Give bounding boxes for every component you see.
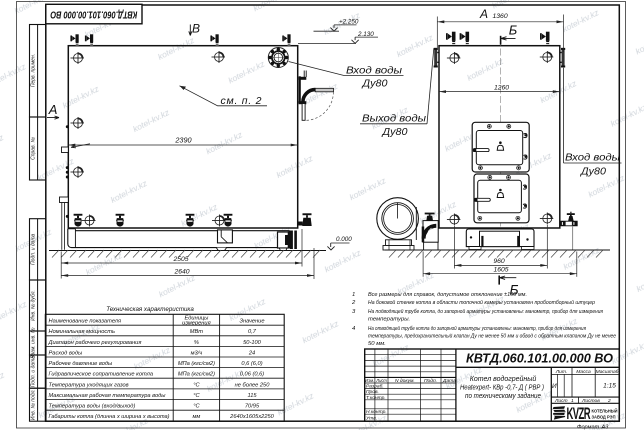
svg-text:А3: А3	[601, 425, 610, 430]
svg-text:1: 1	[352, 292, 355, 298]
svg-text:1: 1	[571, 398, 574, 404]
svg-text:Ду80: Ду80	[381, 127, 408, 138]
svg-text:Выход воды: Выход воды	[362, 114, 427, 125]
svg-text:0.000: 0.000	[336, 236, 352, 243]
svg-text:мм: мм	[192, 414, 200, 420]
svg-text:2: 2	[607, 398, 611, 404]
svg-text:Значение: Значение	[240, 319, 265, 325]
svg-text:Дата: Дата	[442, 378, 456, 384]
svg-text:Т.контр.: Т.контр.	[366, 395, 386, 401]
svg-text:Утв.: Утв.	[366, 415, 377, 421]
svg-text:960: 960	[493, 258, 505, 265]
svg-text:Подп. и дата: Подп. и дата	[31, 356, 37, 388]
svg-text:2390: 2390	[174, 135, 191, 144]
svg-text:2640х1605х2250: 2640х1605х2250	[229, 414, 274, 420]
svg-text:1260: 1260	[494, 84, 509, 91]
svg-text:КВТД.060.101.00.000 ВО: КВТД.060.101.00.000 ВО	[466, 352, 613, 366]
svg-text:Пров.: Пров.	[366, 389, 379, 395]
svg-text:50 мм.: 50 мм.	[368, 341, 386, 347]
svg-text:Взам. инв. №: Взам. инв. №	[31, 327, 37, 359]
svg-text:Вход воды: Вход воды	[346, 65, 403, 76]
svg-text:не более 250: не более 250	[235, 382, 271, 388]
svg-text:Гидравлическое сопративление к: Гидравлическое сопративление котла	[49, 372, 154, 378]
svg-text:Инв. № дубл.: Инв. № дубл.	[31, 290, 37, 321]
svg-text:На отводящей трубе котла до за: На отводящей трубе котла до запорной арм…	[368, 325, 587, 332]
svg-text:температуры.: температуры.	[368, 316, 410, 322]
svg-text:Инв. № подл.: Инв. № подл.	[31, 389, 37, 420]
svg-text:Габариты котла (длинна х ширин: Габариты котла (длинна х ширина х высота…	[49, 414, 170, 420]
svg-text:МПа (кгс/см2): МПа (кгс/см2)	[178, 361, 215, 367]
svg-text:Диапазон рабочего регулировани: Диапазон рабочего регулирования	[48, 340, 142, 346]
svg-text:МВт: МВт	[190, 329, 204, 335]
svg-text:0,6 (6,0): 0,6 (6,0)	[241, 361, 262, 367]
svg-text:по техническому задание: по техническому задание	[465, 392, 541, 400]
svg-text:А: А	[479, 7, 488, 21]
svg-text:ЗАВОД РЭП: ЗАВОД РЭП	[592, 414, 617, 419]
svg-text:°С: °С	[193, 404, 200, 410]
svg-text:Температура уходящих газов: Температура уходящих газов	[49, 382, 129, 388]
svg-text:%: %	[194, 340, 199, 346]
svg-text:Максимальная рабочая температу: Максимальная рабочая температура воды	[49, 393, 167, 399]
svg-text:Наименование показателя: Наименование показателя	[49, 319, 122, 325]
svg-text:0,06 (0,6): 0,06 (0,6)	[240, 372, 264, 378]
svg-text:Ду80: Ду80	[580, 166, 607, 177]
svg-text:1605: 1605	[493, 267, 508, 274]
svg-text:На боковой стенке котла в обла: На боковой стенке котла в области топочн…	[368, 299, 596, 306]
svg-text:N докум.: N докум.	[395, 378, 415, 384]
svg-text:70/95: 70/95	[245, 404, 260, 410]
svg-text:24: 24	[248, 350, 255, 356]
svg-text:м3/ч: м3/ч	[191, 350, 203, 356]
svg-text:Ду80: Ду80	[361, 79, 388, 90]
svg-text:Лист: Лист	[375, 378, 386, 384]
svg-text:И: И	[552, 383, 557, 390]
svg-text:1360: 1360	[493, 13, 508, 20]
svg-text:Все размеры для справок, допус: Все размеры для справок, допустимое откл…	[368, 292, 527, 298]
svg-text:Масштаб: Масштаб	[596, 369, 619, 375]
svg-text:KVZR: KVZR	[567, 405, 591, 423]
svg-text:50-100: 50-100	[243, 340, 262, 346]
svg-text:Расход воды: Расход воды	[49, 350, 83, 356]
svg-text:Лист: Лист	[554, 398, 568, 404]
svg-text:Перв. примен.: Перв. примен.	[31, 54, 37, 87]
svg-text:Температура воды (вход/выход): Температура воды (вход/выход)	[49, 404, 136, 410]
svg-text:КОТЕЛЬНЫЙ: КОТЕЛЬНЫЙ	[592, 407, 619, 414]
svg-text:115: 115	[247, 393, 257, 399]
svg-text:Разраб.: Разраб.	[366, 384, 384, 390]
svg-text:2: 2	[351, 300, 356, 306]
svg-text:Рабочее давление воды: Рабочее давление воды	[49, 361, 114, 367]
svg-text:Номинальная мощность: Номинальная мощность	[49, 329, 115, 335]
svg-text:Heatexpert- КВр -0,7- Д ( РВР: Heatexpert- КВр -0,7- Д ( РВР )	[460, 385, 544, 392]
svg-text:Лит.: Лит.	[555, 369, 567, 375]
svg-text:1:15: 1:15	[603, 383, 616, 390]
svg-text:МПа (кгс/см2): МПа (кгс/см2)	[178, 372, 215, 378]
svg-text:Вход воды: Вход воды	[565, 153, 621, 164]
svg-text:0,7: 0,7	[248, 329, 257, 335]
svg-text:2640: 2640	[173, 269, 189, 276]
svg-text:КВТД.060.101.00.000 ВО: КВТД.060.101.00.000 ВО	[50, 9, 137, 20]
svg-text:°С: °С	[193, 382, 200, 388]
svg-text:Подп. и дата: Подп. и дата	[31, 233, 37, 265]
svg-text:см. п. 2: см. п. 2	[221, 95, 262, 107]
svg-text:Формат: Формат	[577, 425, 600, 430]
svg-text:°С: °С	[193, 393, 200, 399]
svg-text:Масса: Масса	[576, 369, 591, 375]
svg-text:Котел водогрейный: Котел водогрейный	[470, 375, 537, 383]
svg-text:Подп.: Подп.	[424, 378, 437, 384]
svg-text:Листов: Листов	[581, 398, 600, 404]
svg-text:Н.контр.: Н.контр.	[366, 409, 387, 415]
svg-text:Б: Б	[509, 23, 518, 38]
svg-text:На подводящей трубе котла, д: На подводящей трубе котла, до запорной а…	[368, 308, 604, 315]
svg-text:+2.250: +2.250	[339, 18, 359, 25]
svg-text:В: В	[192, 22, 200, 36]
svg-text:2.130: 2.130	[357, 31, 374, 38]
svg-text:измерения: измерения	[182, 321, 210, 327]
svg-text:2505: 2505	[172, 256, 188, 263]
svg-text:Изм.: Изм.	[365, 378, 374, 384]
svg-text:Справ. №: Справ. №	[31, 137, 37, 160]
svg-text:температуры, предохранительный: температуры, предохранительный клапан Ду…	[368, 333, 617, 340]
svg-text:Техническая характеристика: Техническая характеристика	[106, 306, 194, 313]
svg-text:А: А	[48, 102, 58, 117]
